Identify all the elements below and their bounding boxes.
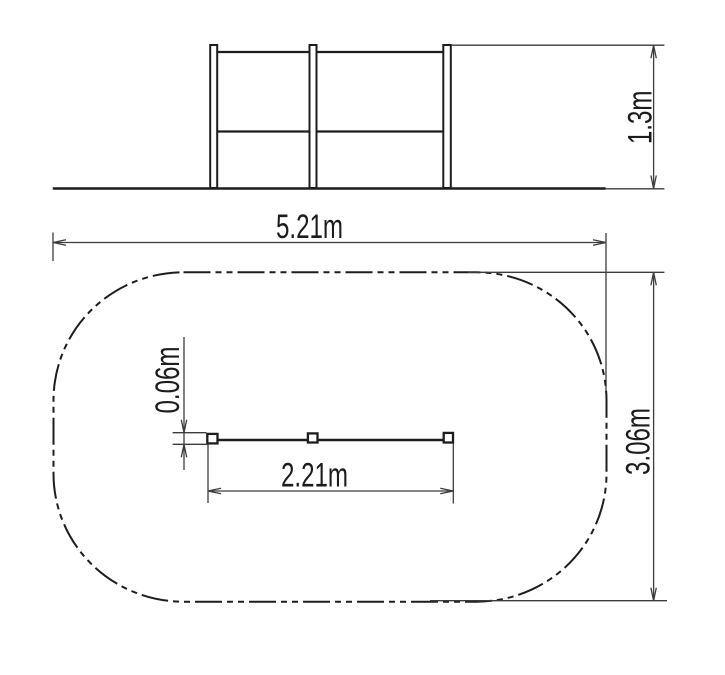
svg-text:0.06m: 0.06m — [149, 346, 187, 413]
svg-text:1.3m: 1.3m — [622, 90, 660, 144]
svg-text:2.21m: 2.21m — [281, 457, 348, 495]
svg-text:5.21m: 5.21m — [276, 208, 343, 246]
svg-text:3.06m: 3.06m — [620, 408, 658, 475]
